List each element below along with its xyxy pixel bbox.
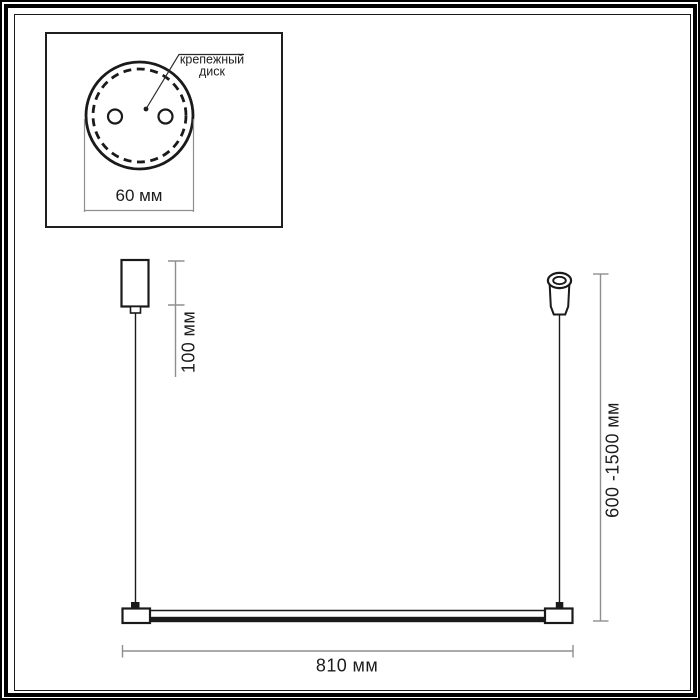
diagram-page: крепежный диск 60 мм 100 мм 600 -1500 мм… bbox=[0, 0, 700, 700]
callout-line-2: диск bbox=[180, 66, 244, 78]
bar-end-cap-right bbox=[545, 609, 573, 624]
bar-end-cap-left bbox=[123, 609, 151, 624]
disk-diameter-label: 60 мм bbox=[115, 186, 162, 206]
bar-diffuser-band bbox=[150, 617, 545, 622]
canopy-left bbox=[122, 260, 149, 307]
drawing-linework bbox=[0, 0, 700, 700]
canopy-drop-label: 100 мм bbox=[179, 311, 200, 373]
canopy-right-ring-inner bbox=[553, 277, 566, 284]
canopy-left-nipple bbox=[131, 307, 141, 314]
bar-length-label: 810 мм bbox=[316, 656, 378, 677]
suspension-range-label: 600 -1500 мм bbox=[603, 402, 624, 518]
mounting-hole-left bbox=[108, 110, 122, 124]
mounting-disk-callout-label: крепежный диск bbox=[180, 55, 244, 78]
mounting-disk-outline bbox=[86, 62, 193, 169]
mounting-hole-right bbox=[159, 110, 173, 124]
